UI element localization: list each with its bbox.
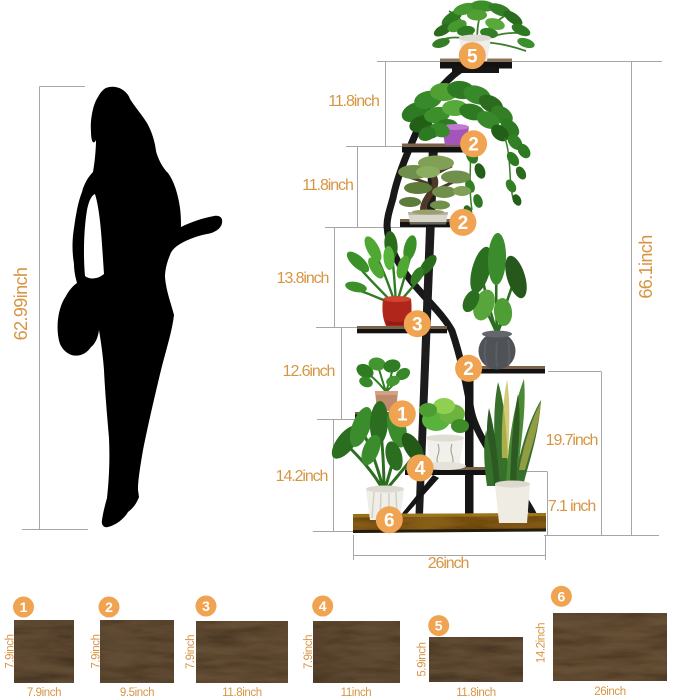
svg-text:3: 3 bbox=[412, 314, 423, 335]
svg-text:26inch: 26inch bbox=[428, 555, 469, 572]
svg-text:19.7inch: 19.7inch bbox=[546, 432, 598, 449]
svg-text:14.2inch: 14.2inch bbox=[276, 468, 328, 485]
svg-text:7.9inch: 7.9inch bbox=[5, 634, 17, 668]
svg-text:4: 4 bbox=[319, 598, 327, 614]
svg-text:26inch: 26inch bbox=[594, 686, 626, 698]
svg-text:7.9inch: 7.9inch bbox=[303, 635, 315, 669]
svg-text:11.8inch: 11.8inch bbox=[328, 93, 379, 110]
svg-text:5.9inch: 5.9inch bbox=[417, 642, 429, 676]
svg-text:7.9inch: 7.9inch bbox=[27, 687, 61, 698]
svg-text:11.8inch: 11.8inch bbox=[302, 177, 353, 194]
svg-text:4: 4 bbox=[415, 459, 426, 480]
svg-text:11.8inch: 11.8inch bbox=[456, 687, 495, 698]
svg-text:2: 2 bbox=[458, 213, 469, 234]
svg-text:9.5inch: 9.5inch bbox=[120, 687, 154, 698]
svg-text:5: 5 bbox=[467, 46, 478, 67]
svg-text:12.6inch: 12.6inch bbox=[283, 363, 335, 380]
svg-text:14.2inch: 14.2inch bbox=[536, 623, 548, 663]
svg-text:11.8inch: 11.8inch bbox=[222, 687, 261, 698]
svg-text:11inch: 11inch bbox=[341, 687, 372, 698]
svg-text:62.99inch: 62.99inch bbox=[11, 268, 31, 341]
svg-text:66.1inch: 66.1inch bbox=[636, 235, 656, 298]
svg-text:1: 1 bbox=[397, 405, 408, 426]
svg-text:13.8inch: 13.8inch bbox=[277, 270, 329, 287]
svg-text:7.1 inch: 7.1 inch bbox=[548, 498, 595, 515]
svg-text:6: 6 bbox=[384, 511, 395, 532]
svg-text:2: 2 bbox=[105, 599, 113, 615]
svg-text:5: 5 bbox=[435, 618, 443, 634]
svg-text:2: 2 bbox=[468, 135, 479, 156]
svg-text:7.9inch: 7.9inch bbox=[185, 635, 197, 669]
svg-text:3: 3 bbox=[202, 598, 210, 614]
svg-text:2: 2 bbox=[463, 359, 474, 380]
svg-text:7.9inch: 7.9inch bbox=[91, 634, 103, 668]
svg-text:6: 6 bbox=[558, 588, 566, 604]
svg-text:1: 1 bbox=[20, 599, 28, 615]
